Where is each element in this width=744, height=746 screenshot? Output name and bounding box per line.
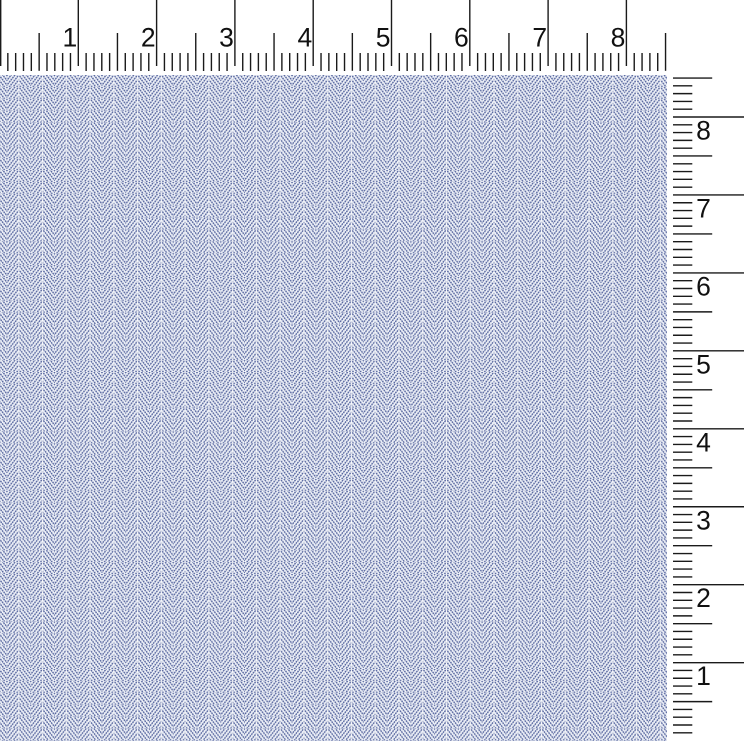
svg-text:1: 1	[63, 23, 78, 53]
svg-text:7: 7	[532, 23, 547, 53]
svg-text:3: 3	[696, 505, 711, 535]
svg-text:5: 5	[696, 349, 711, 379]
svg-text:8: 8	[696, 116, 711, 146]
svg-text:3: 3	[219, 23, 234, 53]
svg-text:4: 4	[297, 23, 312, 53]
svg-text:8: 8	[611, 23, 626, 53]
svg-text:2: 2	[696, 583, 711, 613]
svg-text:6: 6	[454, 23, 469, 53]
svg-text:2: 2	[141, 23, 156, 53]
svg-text:4: 4	[696, 427, 711, 457]
svg-text:5: 5	[376, 23, 391, 53]
svg-text:1: 1	[696, 661, 711, 691]
svg-text:6: 6	[696, 271, 711, 301]
svg-text:7: 7	[696, 193, 711, 223]
